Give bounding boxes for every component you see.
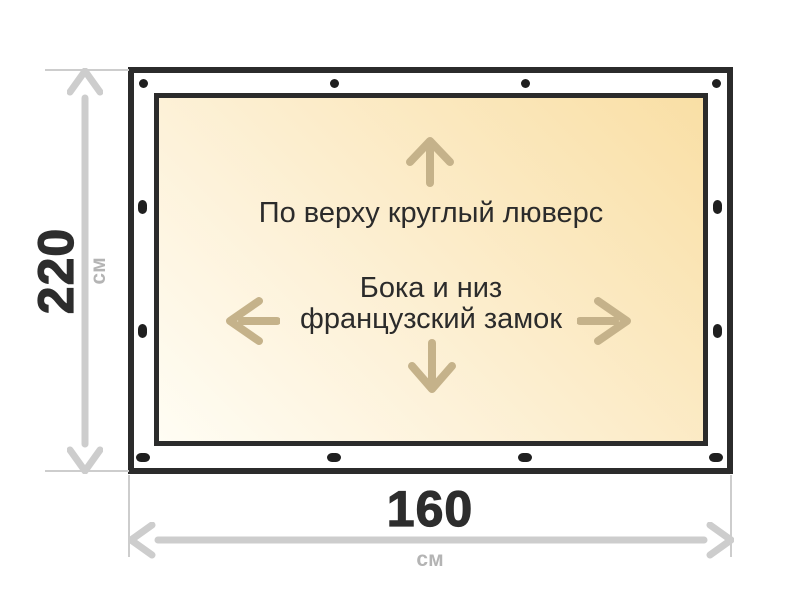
height-unit: см: [79, 246, 119, 296]
lock-slot-icon: [518, 453, 532, 462]
sides-annotation: Бока и низ французский замок: [154, 273, 708, 335]
grommet-dot-icon: [139, 79, 148, 88]
arrow-down-icon: [408, 339, 456, 393]
lock-slot-icon: [713, 324, 722, 338]
width-value: 160: [330, 486, 530, 532]
width-unit: см: [380, 549, 480, 570]
lock-slot-icon: [713, 200, 722, 214]
sides-annotation-line2: французский замок: [154, 304, 708, 335]
lock-slot-icon: [327, 453, 341, 462]
dimension-diagram: По верху круглый люверс Бока и низ франц…: [0, 0, 800, 600]
arrow-up-icon: [406, 137, 454, 187]
grommet-dot-icon: [521, 79, 530, 88]
lock-slot-icon: [136, 453, 150, 462]
grommet-dot-icon: [330, 79, 339, 88]
lock-slot-icon: [138, 200, 147, 214]
lock-slot-icon: [138, 324, 147, 338]
height-value: 220: [31, 201, 81, 341]
sides-annotation-line1: Бока и низ: [154, 273, 708, 304]
lock-slot-icon: [709, 453, 723, 462]
top-edge-annotation: По верху круглый люверс: [154, 198, 708, 229]
grommet-dot-icon: [712, 79, 721, 88]
